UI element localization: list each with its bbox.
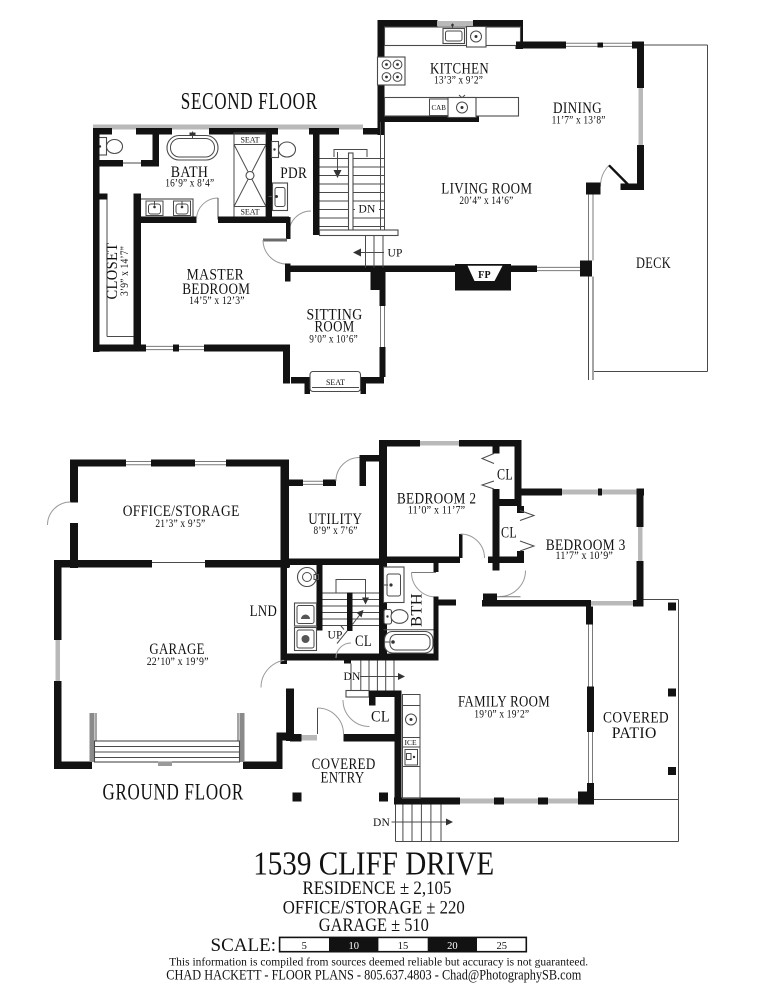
svg-text:11’7” x 10’9”: 11’7” x 10’9” (556, 550, 614, 562)
svg-text:13’3” x 9’2”: 13’3” x 9’2” (434, 75, 483, 87)
svg-text:COVERED: COVERED (603, 710, 669, 727)
svg-text:3’9” x 14’7”: 3’9” x 14’7” (119, 246, 131, 296)
svg-text:DN: DN (373, 817, 391, 829)
svg-text:UP: UP (327, 630, 342, 642)
svg-text:8’9” x 7’6”: 8’9” x 7’6” (314, 525, 358, 537)
svg-text:ICE: ICE (404, 738, 417, 747)
svg-text:CHAD HACKETT - FLOOR PLANS - 8: CHAD HACKETT - FLOOR PLANS - 805.637.480… (166, 968, 582, 984)
svg-text:SCALE:: SCALE: (211, 935, 276, 956)
svg-text:SEAT: SEAT (326, 378, 345, 387)
svg-text:15: 15 (398, 941, 409, 952)
svg-text:11’7” x 13’8”: 11’7” x 13’8” (552, 115, 606, 127)
svg-text:GROUND FLOOR: GROUND FLOOR (102, 780, 244, 805)
svg-text:RESIDENCE ± 2,105: RESIDENCE ± 2,105 (303, 878, 452, 899)
svg-text:DN: DN (358, 204, 376, 216)
svg-text:CL: CL (497, 467, 513, 484)
svg-text:21’3” x 9’5”: 21’3” x 9’5” (155, 518, 205, 530)
svg-text:PDR: PDR (280, 165, 307, 182)
svg-text:CL: CL (355, 633, 372, 650)
svg-text:11’0” x 11’7”: 11’0” x 11’7” (408, 505, 466, 517)
svg-text:CL: CL (371, 709, 390, 726)
svg-text:20: 20 (447, 941, 458, 952)
svg-text:SECOND FLOOR: SECOND FLOOR (181, 89, 318, 115)
svg-text:20’4” x 14’6”: 20’4” x 14’6” (459, 195, 513, 207)
svg-text:19’0” x 19’2”: 19’0” x 19’2” (474, 709, 529, 721)
svg-text:CAB: CAB (431, 104, 446, 112)
svg-text:SEAT: SEAT (240, 208, 259, 217)
svg-text:UP: UP (387, 248, 402, 260)
svg-text:CL: CL (501, 525, 517, 542)
svg-text:GARAGE ± 510: GARAGE ± 510 (319, 915, 429, 936)
svg-text:22’10” x 19’9”: 22’10” x 19’9” (147, 656, 209, 668)
svg-text:LND: LND (250, 603, 278, 620)
svg-text:DECK: DECK (636, 255, 671, 272)
svg-text:5: 5 (302, 941, 307, 952)
svg-text:10: 10 (348, 941, 359, 952)
svg-text:BTH: BTH (409, 593, 426, 627)
svg-text:1539 CLIFF DRIVE: 1539 CLIFF DRIVE (253, 846, 494, 883)
svg-text:16’9” x 8’4”: 16’9” x 8’4” (165, 178, 214, 190)
svg-text:14’5” x 12’3”: 14’5” x 12’3” (189, 295, 245, 307)
svg-text:SEAT: SEAT (240, 136, 259, 145)
svg-text:FP: FP (478, 270, 491, 281)
svg-text:ENTRY: ENTRY (321, 770, 365, 787)
svg-text:25: 25 (496, 941, 507, 952)
svg-text:PATIO: PATIO (612, 725, 657, 742)
svg-text:DN: DN (343, 671, 361, 683)
svg-text:9’0” x 10’6”: 9’0” x 10’6” (309, 334, 358, 346)
